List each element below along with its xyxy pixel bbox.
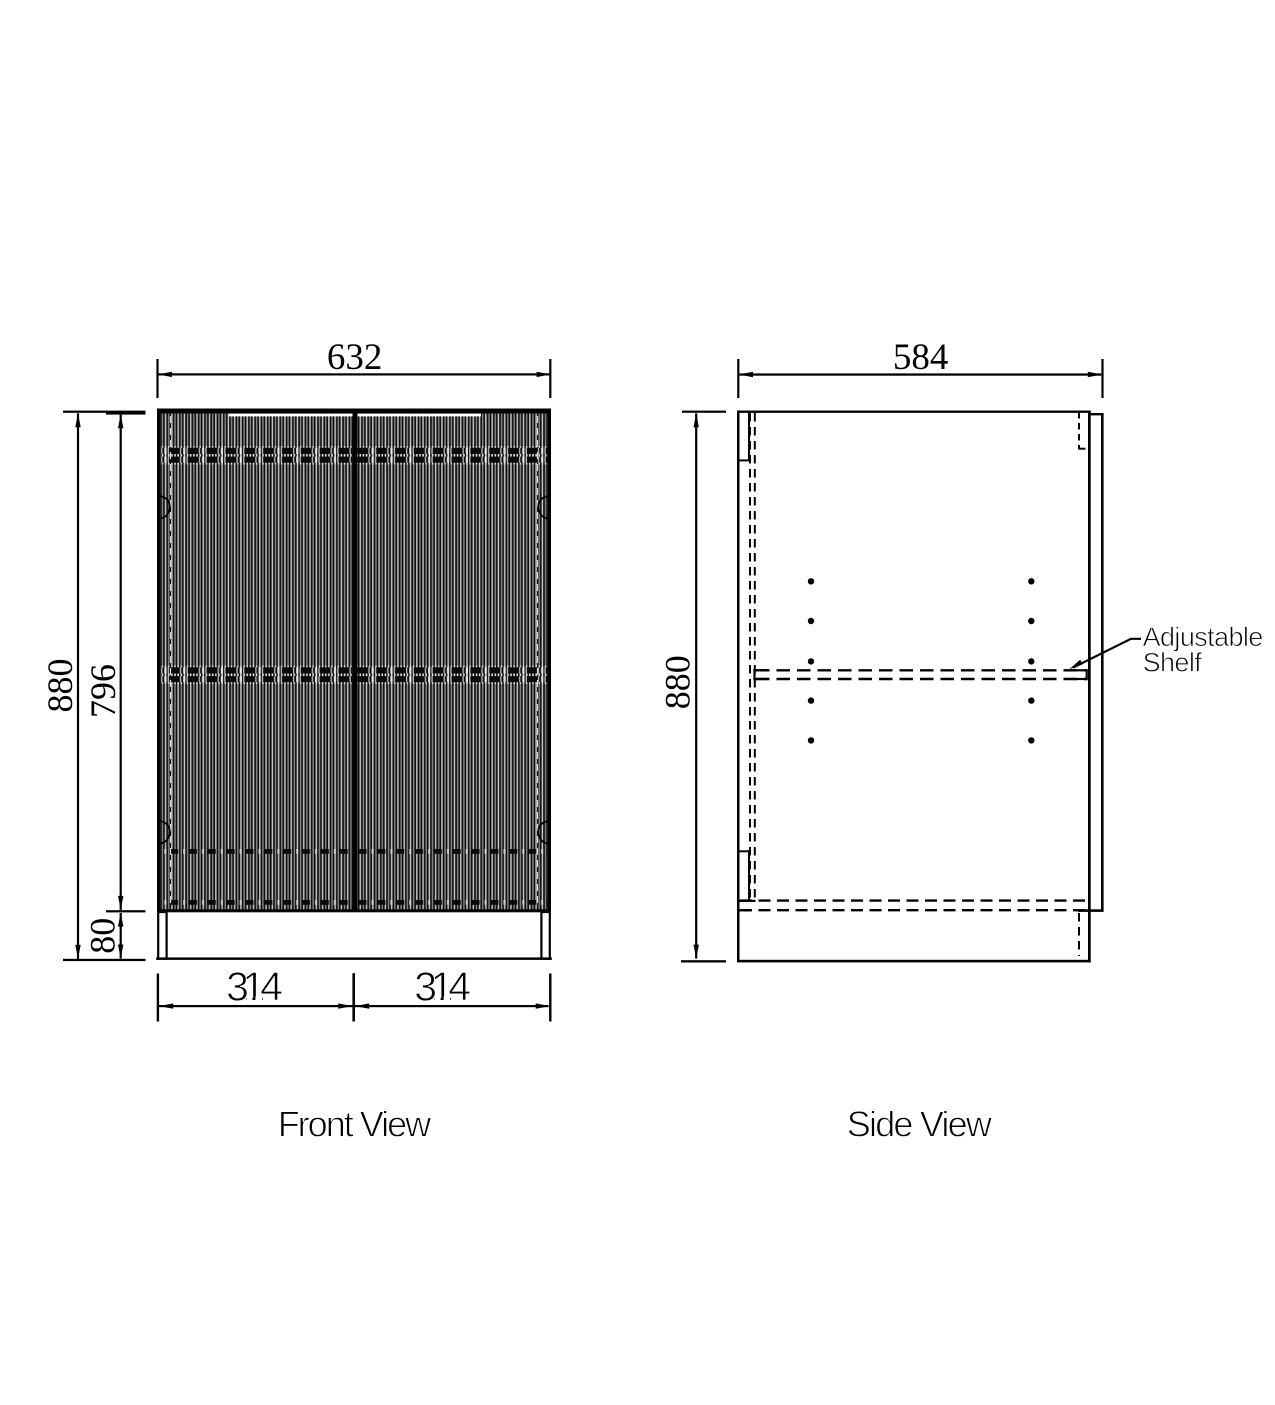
svg-text:4: 4	[448, 964, 471, 1010]
svg-text:Front View: Front View	[278, 1104, 432, 1145]
svg-text:880: 880	[657, 655, 697, 709]
svg-text:80: 80	[82, 918, 122, 954]
svg-text:584: 584	[893, 337, 949, 378]
svg-text:Side View: Side View	[847, 1104, 993, 1145]
svg-text:880: 880	[40, 659, 80, 713]
svg-text:796: 796	[83, 664, 123, 718]
svg-text:632: 632	[327, 337, 383, 378]
svg-text:Shelf: Shelf	[1143, 647, 1203, 677]
svg-text:4: 4	[260, 964, 283, 1010]
